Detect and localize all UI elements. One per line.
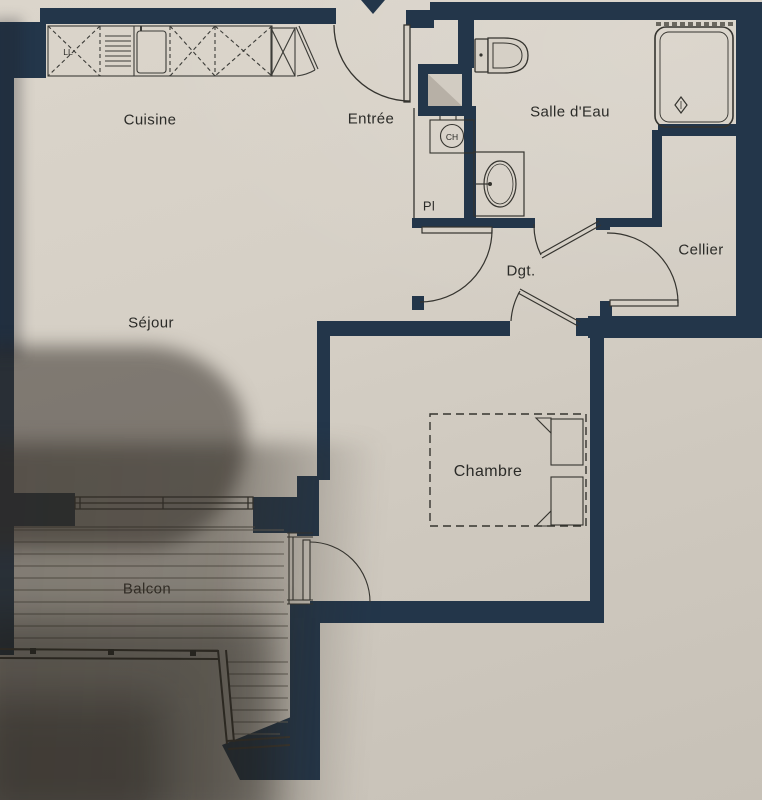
door-chambre bbox=[511, 289, 580, 326]
kitchen-counter bbox=[48, 26, 318, 76]
room-label-degagement: Dgt. bbox=[506, 263, 535, 280]
room-label-balcon: Balcon bbox=[123, 581, 171, 598]
room-label-cellier: Cellier bbox=[678, 242, 723, 259]
room-label-salle-deau: Salle d'Eau bbox=[530, 104, 610, 121]
entrance-arrow-icon bbox=[361, 0, 385, 14]
shower-icon bbox=[655, 24, 733, 127]
balcony-decking bbox=[14, 527, 288, 734]
room-label-cuisine: Cuisine bbox=[124, 112, 177, 129]
annotation-lave-linge: LL bbox=[63, 47, 72, 57]
room-label-entree: Entrée bbox=[348, 111, 395, 128]
room-label-chambre: Chambre bbox=[454, 463, 523, 481]
entrance-door bbox=[334, 25, 410, 102]
technical-shaft bbox=[428, 74, 462, 106]
sink-icon bbox=[105, 26, 166, 76]
balcony-door bbox=[287, 533, 370, 604]
door-salle-deau bbox=[534, 221, 601, 258]
room-label-sejour: Séjour bbox=[128, 315, 174, 332]
annotation-chauffe-eau: CH bbox=[446, 132, 458, 142]
floor-plan-photo: Cuisine Entrée Salle d'Eau Cellier Dgt. … bbox=[0, 0, 762, 800]
fridge-icon bbox=[271, 26, 318, 76]
annotation-placard: Pl bbox=[423, 199, 435, 214]
washbasin-icon bbox=[474, 152, 524, 216]
balcony-window bbox=[75, 497, 253, 509]
toilet-icon bbox=[475, 38, 528, 73]
door-sejour bbox=[420, 227, 492, 302]
door-cellier bbox=[607, 233, 678, 306]
